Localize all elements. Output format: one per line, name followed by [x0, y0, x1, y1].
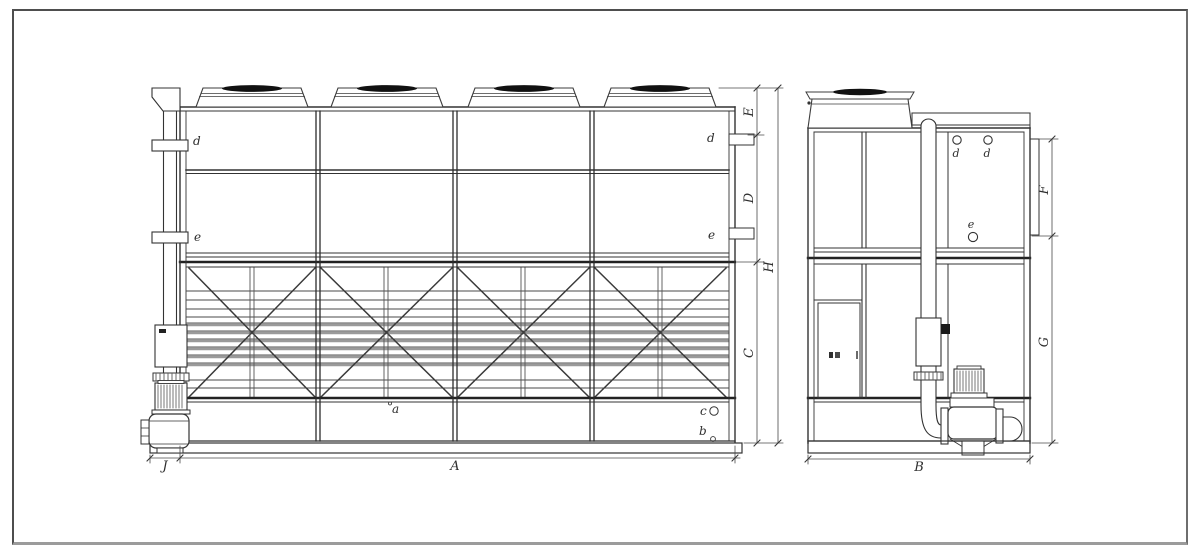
connection-label-d1: d	[952, 147, 959, 160]
connection-e	[968, 232, 977, 241]
dim-label-C: C	[742, 348, 757, 358]
basin-label-a: a	[392, 402, 399, 416]
riser-pipe-front	[152, 88, 189, 381]
dim-label-A: A	[449, 459, 459, 474]
access-door	[818, 303, 860, 398]
panel-label-d-right: d	[707, 131, 715, 145]
dim-label-D: D	[742, 192, 757, 204]
pump-volute-front	[149, 414, 189, 448]
pipe-flange-side	[914, 372, 943, 380]
pump-end-cap	[1003, 417, 1022, 441]
dim-label-J: J	[159, 459, 168, 474]
pump-discharge-flange	[996, 409, 1003, 443]
side-view: d d e	[805, 89, 1058, 475]
front-view: d d e e a c b	[141, 85, 783, 474]
flow-switch	[941, 324, 950, 334]
basin-labels: a c b	[389, 402, 719, 441]
pipe-flange-collar-lower	[152, 232, 188, 243]
casing-structure	[180, 107, 735, 443]
connection-label-e: e	[968, 218, 975, 231]
cowl-bolt	[807, 101, 810, 104]
pump-suction-flange-side	[941, 408, 948, 444]
side-casing	[808, 128, 1030, 443]
pump-suction-flange-front	[141, 420, 149, 444]
fan-cowl-4	[604, 85, 716, 107]
connection-label-d2: d	[983, 147, 990, 160]
dim-label-F: F	[1037, 185, 1052, 196]
bay-dividers	[316, 111, 594, 441]
overflow-connection	[710, 407, 718, 415]
pipe-elbow-top	[152, 88, 180, 111]
pipe-flange-collar-upper	[152, 140, 188, 151]
dim-label-G: G	[1037, 337, 1052, 347]
connection-d-1	[953, 136, 961, 144]
connection-d-2	[984, 136, 992, 144]
panel-label-e-left: e	[194, 230, 201, 244]
fan-cowl-1	[196, 85, 308, 107]
basin-label-b: b	[699, 424, 707, 438]
pipe-expansion-box	[916, 318, 941, 366]
connection-stub-upper	[729, 134, 754, 145]
riser-pipe-side	[914, 119, 950, 438]
pump-volute-side	[948, 407, 998, 439]
dim-label-B: B	[913, 460, 924, 475]
connection-stub-lower	[729, 228, 754, 239]
base-channel	[150, 431, 742, 453]
door-label-marks	[829, 351, 858, 359]
side-fan-cowl	[806, 89, 914, 128]
dim-label-H: H	[762, 261, 777, 274]
panel-label-d-left: d	[193, 134, 201, 148]
fan-cowl-3	[468, 85, 580, 107]
fan-cowls	[196, 85, 716, 107]
spray-pump-front	[141, 381, 190, 454]
drawing-sheet: d d e e a c b	[0, 0, 1200, 559]
dim-label-E: E	[742, 107, 757, 118]
cooling-tower-drawing: d d e e a c b	[0, 0, 1200, 559]
side-dimensions-right	[1032, 136, 1058, 446]
basin-label-c: c	[700, 404, 707, 418]
panel-label-e-right: e	[708, 228, 715, 242]
fan-cowl-2	[331, 85, 443, 107]
